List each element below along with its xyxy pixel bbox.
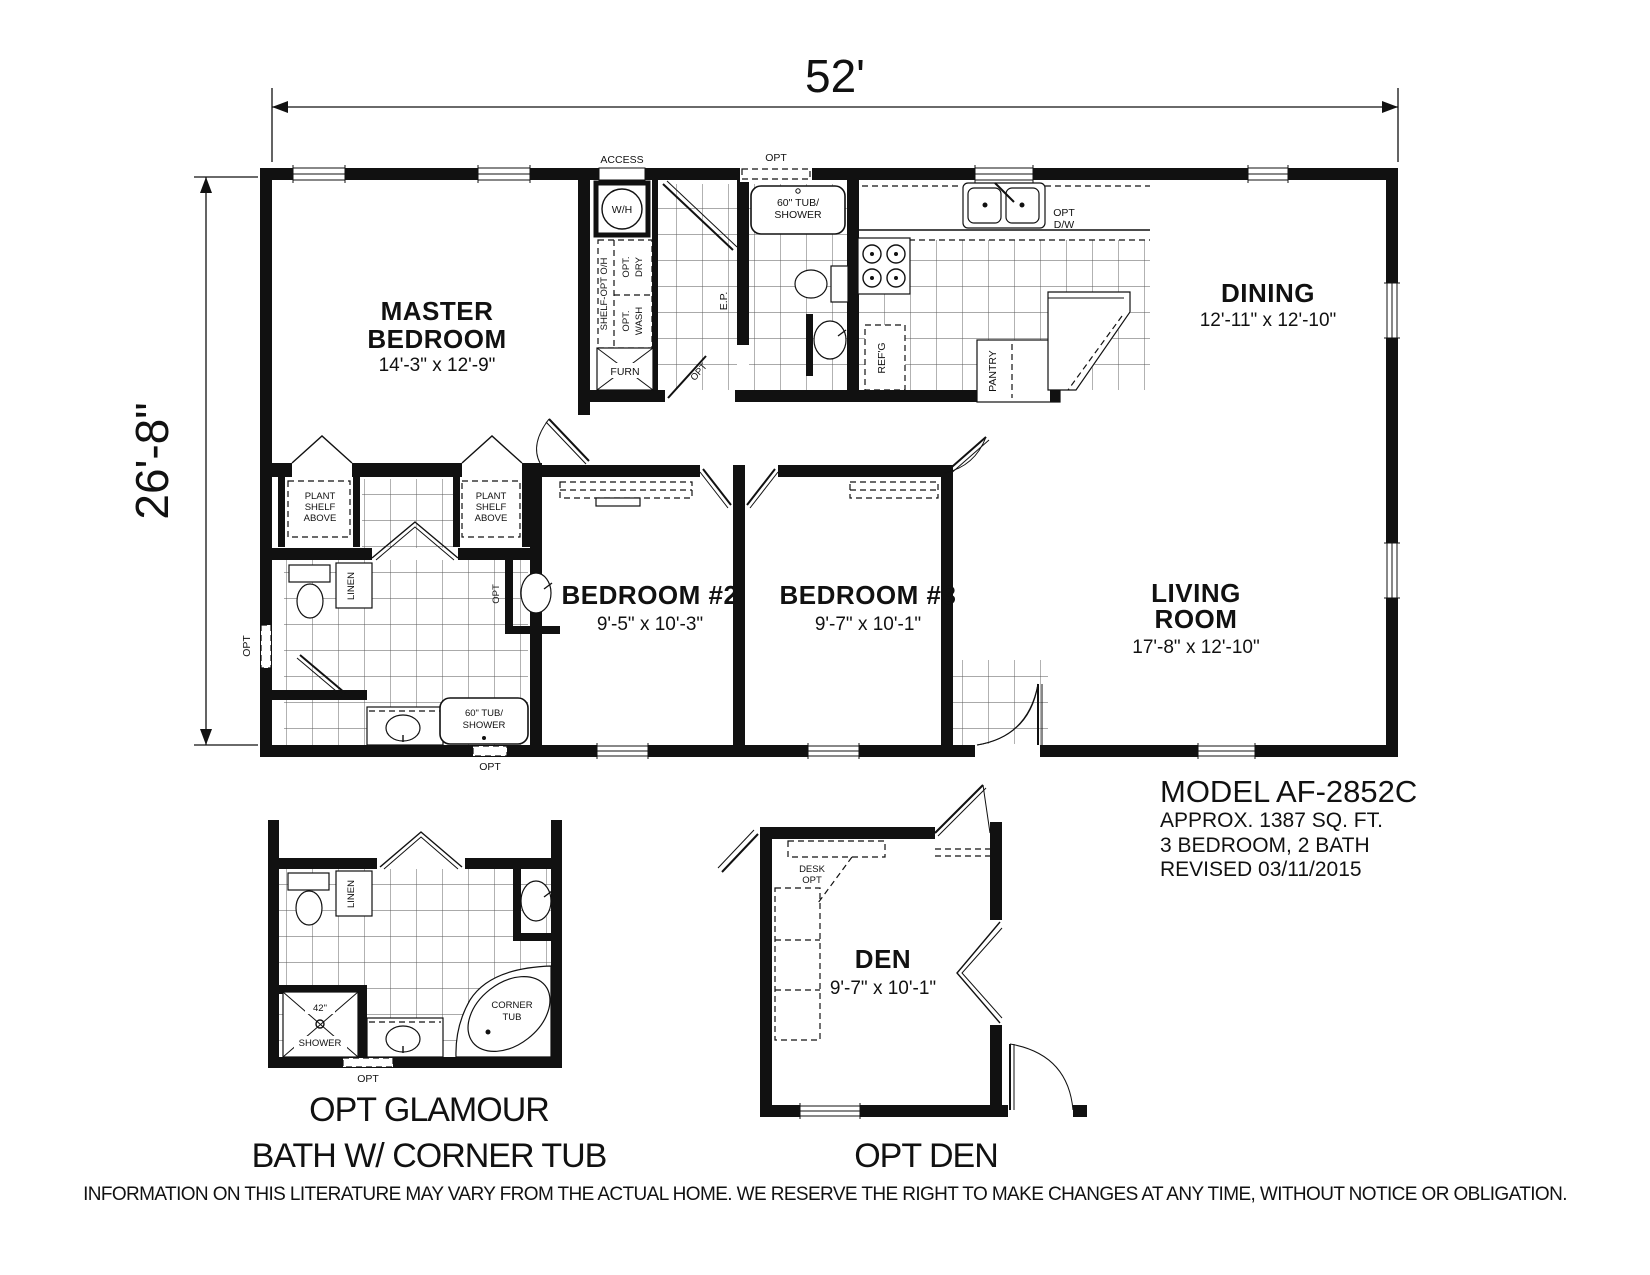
access-panel: ACCESS	[599, 154, 645, 180]
tub-shower: 60" TUB/ SHOWER	[751, 186, 845, 234]
vanity-sink-2	[367, 707, 443, 745]
opt-sink-label: OPT	[491, 584, 502, 604]
bed3-living-wall	[941, 465, 953, 757]
glamour-bath-detail: LINEN 42" SHOWER CORNER	[268, 820, 564, 1085]
plant-shelf-label-2: SHELF	[305, 502, 336, 513]
tub-label-2: SHOWER	[463, 720, 506, 731]
tub-label-1: 60" TUB/	[777, 197, 819, 209]
opt-window-label: OPT	[241, 635, 253, 657]
range-stove	[858, 238, 910, 294]
window	[808, 743, 859, 759]
corner-tub-label-1: CORNER	[491, 1000, 532, 1011]
opt-window: OPT	[740, 152, 812, 182]
den-label: DEN	[855, 944, 911, 974]
square-footage: APPROX. 1387 SQ. FT.	[1160, 809, 1383, 832]
arrow-left-icon	[272, 101, 288, 113]
window	[478, 165, 530, 183]
desk-label-2: OPT	[802, 875, 822, 886]
den-opening-door	[722, 834, 758, 872]
opt-window: OPT	[343, 1058, 393, 1085]
shower-label: SHOWER	[299, 1038, 342, 1049]
window	[800, 1103, 860, 1119]
toilet-nook-wall	[272, 690, 367, 700]
corner-tub-label-2: TUB	[503, 1012, 522, 1023]
linen-label: LINEN	[346, 572, 357, 600]
master-bedroom-label-1: MASTER	[381, 296, 494, 326]
den-french-doors	[957, 922, 1002, 1023]
title-block: MODEL AF-2852C APPROX. 1387 SQ. FT. 3 BE…	[1160, 774, 1417, 881]
shower-42: 42" SHOWER	[283, 992, 358, 1057]
window	[1198, 743, 1255, 759]
linen-label: LINEN	[346, 880, 357, 908]
kitchen-sink	[963, 183, 1045, 228]
bedroom2-label: BEDROOM #2	[562, 580, 739, 610]
master-bedroom-door	[537, 419, 589, 464]
den-exterior-door	[1008, 1044, 1073, 1118]
bath-vestibule-tile	[362, 479, 453, 548]
bedroom2-dims: 9'-5" x 10'-3"	[597, 614, 703, 635]
closet-right: PLANT SHELF ABOVE	[453, 436, 530, 547]
linen-closet: LINEN	[336, 871, 372, 916]
dishwasher-label-1: OPT	[1053, 207, 1075, 219]
plant-shelf-label-2: SHELF	[476, 502, 507, 513]
linen-closet: LINEN	[336, 563, 372, 608]
dimension-height-label: 26'-8"	[126, 402, 178, 519]
closet-door	[292, 436, 352, 463]
dining-label: DINING	[1221, 278, 1315, 308]
shelf-label: SHELF-OPT O/H	[599, 258, 610, 331]
bedroom2-dresser	[596, 498, 640, 506]
tub-label-2: SHOWER	[774, 209, 822, 221]
opt-window: OPT	[241, 625, 271, 668]
arrow-up-icon	[200, 177, 212, 193]
opt-window-label: OPT	[479, 761, 501, 773]
revision-date: REVISED 03/11/2015	[1160, 858, 1362, 881]
glamour-caption-2: BATH W/ CORNER TUB	[252, 1137, 607, 1175]
disclaimer-text: INFORMATION ON THIS LITERATURE MAY VARY …	[83, 1184, 1567, 1205]
ep-label: E.P.	[718, 292, 730, 311]
den-dims: 9'-7" x 10'-1"	[830, 978, 936, 999]
den-detail: DESK OPT DEN 9'-7" x 10'-1"	[718, 785, 1087, 1119]
bedroom2-door	[700, 469, 731, 508]
window	[293, 165, 345, 183]
closet-door	[462, 436, 522, 463]
furnace: FURN	[597, 348, 653, 390]
den-caption: OPT DEN	[854, 1137, 998, 1175]
furnace-label: FURN	[610, 366, 639, 378]
window	[975, 165, 1033, 183]
bedroom3-label: BEDROOM #3	[780, 580, 957, 610]
opt-window-label: OPT	[765, 152, 787, 164]
bed2-bed3-wall	[733, 465, 745, 757]
pantry-label: PANTRY	[987, 350, 999, 392]
living-room-dims: 17'-8" x 12'-10"	[1132, 637, 1259, 658]
plant-shelf-label-1: PLANT	[476, 491, 507, 502]
water-heater: W/H	[596, 183, 648, 235]
hall-tile-floor	[658, 184, 737, 390]
bedroom3-dims: 9'-7" x 10'-1"	[815, 614, 921, 635]
plant-shelf-label-3: ABOVE	[475, 513, 508, 524]
window	[1248, 165, 1288, 183]
desk-label-1: DESK	[799, 864, 826, 875]
closet-left: PLANT SHELF ABOVE	[278, 436, 360, 547]
dimension-left: 26'-8"	[126, 177, 258, 745]
model-number: MODEL AF-2852C	[1160, 774, 1417, 809]
living-room-label-2: ROOM	[1155, 604, 1238, 634]
dryer-label-2: DRY	[634, 256, 645, 277]
dining-dims: 12'-11" x 12'-10"	[1200, 310, 1337, 331]
glamour-caption-1: OPT GLAMOUR	[309, 1091, 549, 1129]
floorplan-page: 52' 26'-8"	[0, 0, 1650, 1275]
master-right-wall	[578, 180, 590, 415]
refrigerator: REF'G	[865, 325, 905, 390]
plant-shelf-label-3: ABOVE	[304, 513, 337, 524]
shower-size-label: 42"	[313, 1003, 327, 1014]
window	[1384, 543, 1400, 598]
plant-shelf-label-1: PLANT	[305, 491, 336, 502]
tub-label-1: 60" TUB/	[465, 708, 503, 719]
sofa-outline	[775, 888, 820, 1040]
opt-window-label: OPT	[357, 1073, 379, 1085]
dryer-label-1: OPT.	[621, 256, 632, 277]
arrow-right-icon	[1382, 101, 1398, 113]
den-entry-door	[935, 785, 990, 856]
washer-label-1: OPT.	[621, 310, 632, 331]
opt-window: OPT	[473, 746, 507, 773]
laundry-closet: SHELF-OPT O/H OPT. DRY OPT. WASH	[598, 240, 652, 348]
access-label: ACCESS	[600, 154, 643, 166]
master-bedroom-dims: 14'-3" x 12'-9"	[379, 355, 496, 376]
floorplan-drawing: 52' 26'-8"	[0, 0, 1650, 1275]
dimension-top: 52'	[272, 50, 1398, 162]
bedroom3-door	[747, 469, 778, 508]
bed-bath-count: 3 BEDROOM, 2 BATH	[1160, 834, 1370, 857]
tub-shower: 60" TUB/ SHOWER	[440, 698, 528, 744]
desk-option: DESK OPT	[788, 841, 885, 903]
window	[597, 743, 648, 759]
dishwasher-label-2: D/W	[1054, 219, 1075, 231]
arrow-down-icon	[200, 729, 212, 745]
vanity-sink-2	[367, 1018, 443, 1057]
master-bedroom-label-2: BEDROOM	[367, 324, 506, 354]
washer-label-2: WASH	[634, 307, 645, 335]
dimension-width-label: 52'	[805, 50, 865, 102]
refrigerator-label: REF'G	[876, 342, 888, 373]
water-heater-label: W/H	[612, 204, 632, 216]
window	[1384, 283, 1400, 338]
